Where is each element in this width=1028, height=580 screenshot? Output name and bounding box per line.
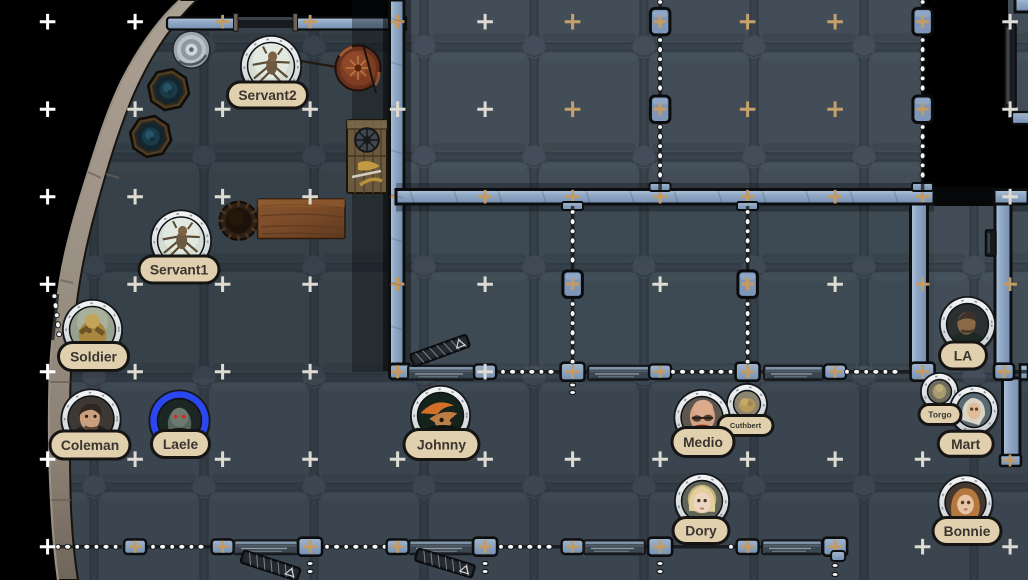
- svg-text:LA: LA: [954, 349, 972, 364]
- svg-text:Torgo: Torgo: [928, 410, 951, 420]
- svg-text:Laele: Laele: [163, 437, 199, 452]
- svg-text:Coleman: Coleman: [61, 438, 119, 453]
- svg-text:Johnny: Johnny: [417, 438, 466, 453]
- svg-text:Medio: Medio: [683, 435, 723, 450]
- svg-text:Dory: Dory: [685, 524, 717, 539]
- svg-text:Bonnie: Bonnie: [944, 524, 991, 539]
- svg-text:Soldier: Soldier: [70, 350, 117, 365]
- svg-text:Servant2: Servant2: [238, 88, 297, 103]
- svg-text:Mart: Mart: [951, 437, 981, 452]
- svg-text:Cuthbert: Cuthbert: [730, 421, 762, 430]
- svg-text:Servant1: Servant1: [150, 263, 209, 278]
